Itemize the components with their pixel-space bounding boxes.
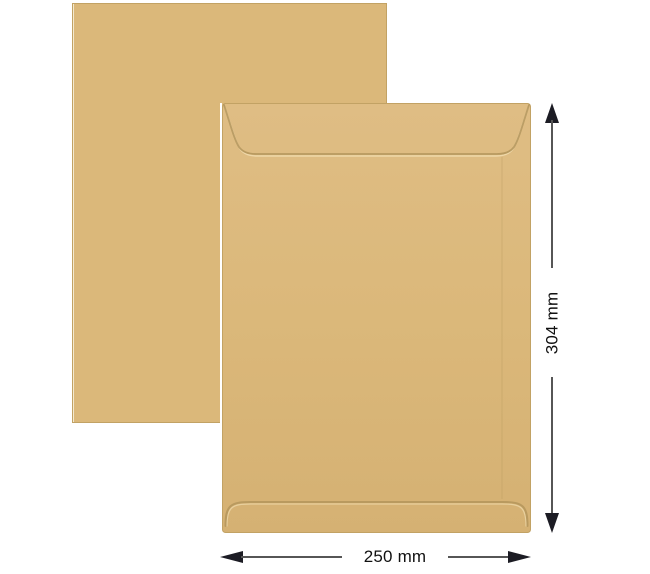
envelope-front-drawing [222, 103, 531, 533]
height-dimension-line-top [551, 120, 553, 268]
width-dimension: 250 mm [220, 545, 531, 569]
envelope-front [220, 103, 531, 533]
height-dimension-label: 304 mm [542, 291, 562, 354]
width-dimension-line-left [241, 556, 342, 558]
width-dimension-line-right [448, 556, 510, 558]
envelope-body [223, 104, 531, 533]
arrow-right-icon [508, 551, 531, 563]
arrow-down-icon [545, 513, 559, 533]
height-dimension-line-bottom [551, 377, 553, 516]
arrow-left-icon [220, 551, 243, 563]
height-dimension: 304 mm [544, 103, 560, 533]
height-dimension-label-box: 304 mm [522, 268, 582, 377]
width-dimension-label: 250 mm [342, 547, 448, 567]
figure-canvas: 304 mm 250 mm [0, 0, 650, 574]
